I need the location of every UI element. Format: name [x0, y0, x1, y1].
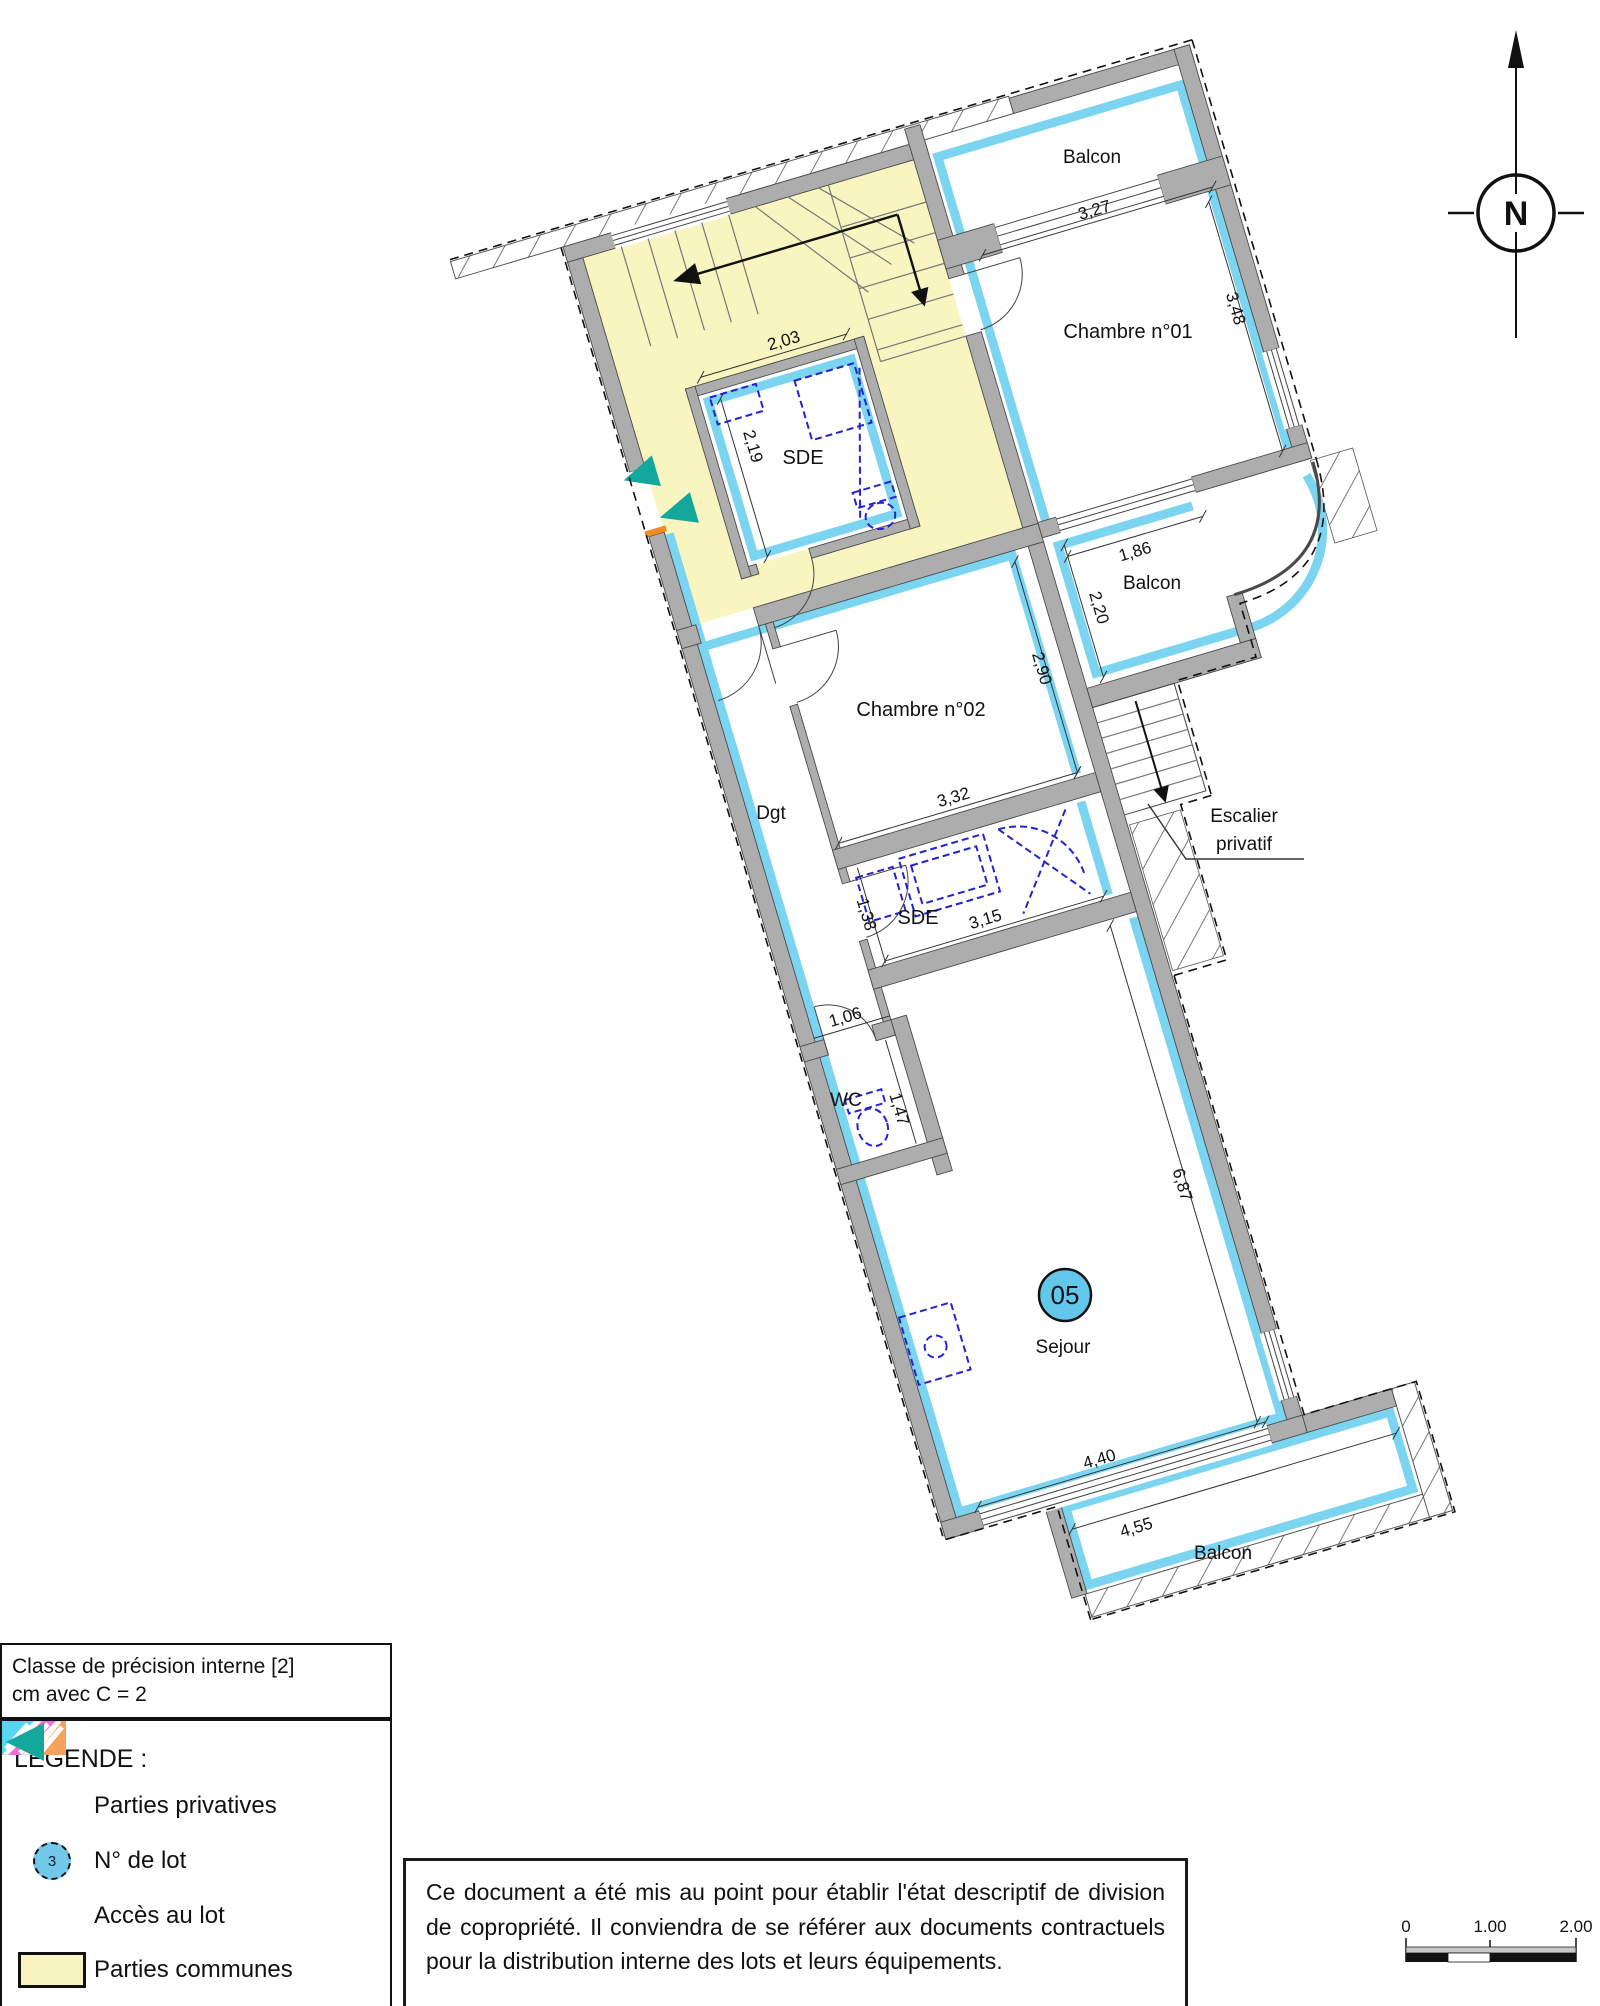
precision-box: Classe de précision interne [2] cm avec …	[0, 1643, 392, 1719]
label-chambre01: Chambre n°01	[1063, 321, 1192, 343]
legend-item-numero-lot: 3 N° de lot	[10, 1842, 382, 1880]
precision-line1: Classe de précision interne [2]	[12, 1653, 380, 1681]
floor-plan-page: 3,27 2,03 1,86 3,32 3,15 1,06 4,40 4,55 …	[0, 0, 1600, 2006]
label-dgt: Dgt	[756, 803, 786, 824]
lot-badge: 05	[1039, 1269, 1091, 1321]
scale-tick-0: 0	[1401, 1917, 1410, 1936]
label-escalier-1: Escalier	[1210, 806, 1278, 827]
note-box: Ce document a été mis au point pour étab…	[403, 1858, 1188, 2006]
room-fills	[458, 60, 1600, 1659]
scale-tick-1: 1.00	[1473, 1917, 1506, 1936]
label-sde2: SDE	[897, 907, 938, 929]
legend-item-parties-privatives: Parties privatives	[10, 1792, 382, 1820]
lot-number-symbol-text: 3	[48, 1853, 56, 1870]
legend-label-parties-privatives: Parties privatives	[94, 1792, 277, 1820]
parties-communes-swatch-icon	[18, 1952, 86, 1988]
label-balcon-top: Balcon	[1063, 147, 1121, 168]
lot-badge-number: 05	[1051, 1280, 1080, 1310]
label-chambre02: Chambre n°02	[856, 699, 985, 721]
legend-label-parties-communes: Parties communes	[94, 1956, 293, 1984]
precision-line2: cm avec C = 2	[12, 1681, 380, 1709]
scale-bar: 0 1.00 2.00	[1401, 1917, 1592, 1962]
north-compass: N	[1448, 30, 1584, 338]
building-plan: 3,27 2,03 1,86 3,32 3,15 1,06 4,40 4,55 …	[450, 29, 1600, 1684]
legend-panel: LEGENDE : Parties privatives 3 N° de lot	[0, 1719, 392, 2006]
legend-label-numero-lot: N° de lot	[94, 1847, 186, 1875]
north-arrow-head	[1508, 30, 1524, 68]
label-sejour: Sejour	[1036, 1337, 1092, 1358]
legend-label-acces-au-lot: Accès au lot	[94, 1902, 225, 1930]
label-sde1: SDE	[782, 447, 823, 469]
legend-item-acces-au-lot: Accès au lot	[10, 1902, 382, 1930]
note-text: Ce document a été mis au point pour étab…	[426, 1879, 1165, 1974]
label-balcon-mid: Balcon	[1123, 573, 1181, 594]
label-balcon-bottom: Balcon	[1194, 1543, 1252, 1564]
legend-title: LEGENDE :	[14, 1745, 382, 1774]
legend-item-parties-communes: Parties communes	[10, 1952, 382, 1988]
lot-number-icon: 3	[33, 1842, 71, 1880]
label-wc: WC	[830, 1090, 862, 1111]
label-escalier-2: privatif	[1216, 834, 1273, 855]
north-label: N	[1504, 195, 1529, 233]
scale-tick-2: 2.00	[1559, 1917, 1592, 1936]
